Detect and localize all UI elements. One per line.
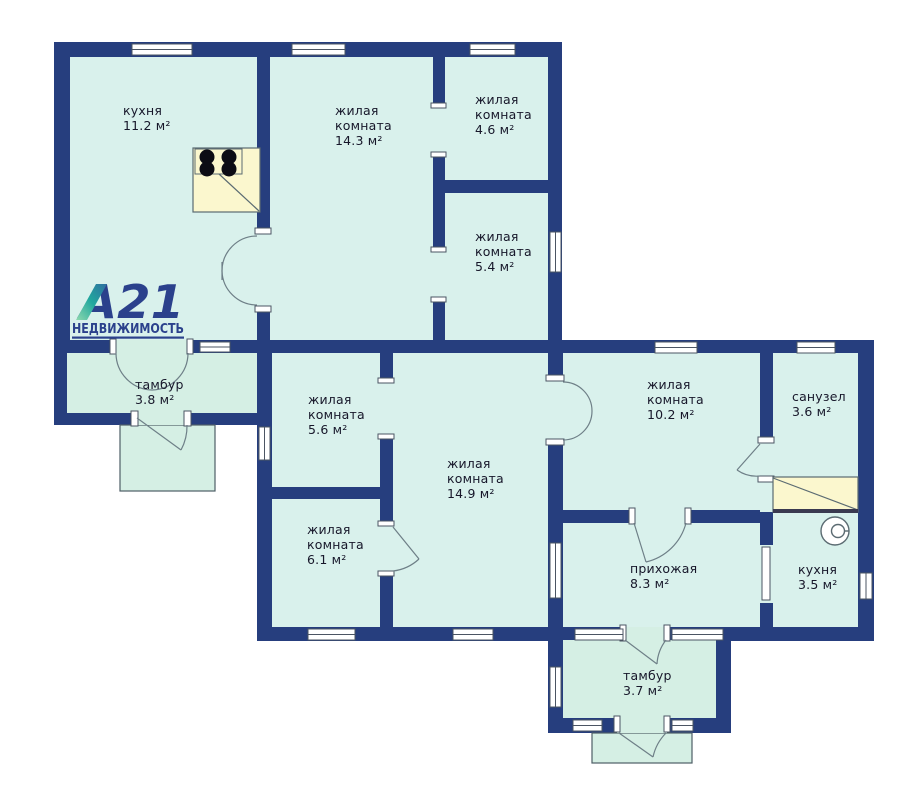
room-label-living-6-1: жилая комната 6.1 м² — [307, 522, 364, 567]
sink-icon — [821, 517, 849, 545]
room-label-kitchen-main: кухня 11.2 м² — [123, 103, 171, 133]
stove-icon — [193, 148, 260, 212]
room-label-bathroom-3-6: санузел 3.6 м² — [792, 389, 846, 419]
room-label-living-5-6: жилая комната 5.6 м² — [308, 392, 365, 437]
logo-underline — [72, 337, 184, 339]
room-interiors — [67, 57, 858, 718]
room-label-living-14-9: жилая комната 14.9 м² — [447, 456, 504, 501]
room-label-hallway-8-3: прихожая 8.3 м² — [630, 561, 697, 591]
room-label-kitchen-3-5: кухня 3.5 м² — [798, 562, 838, 592]
logo-subtitle-text: НЕДВИЖИМОСТЬ — [72, 321, 184, 337]
room-label-tambour-3-7: тамбур 3.7 м² — [623, 668, 672, 698]
porch-bottom — [592, 733, 692, 763]
floor-plan-page: А21 НЕДВИЖИМОСТЬ кухня 11.2 м² жилая ком… — [0, 0, 900, 798]
room-label-living-4-6: жилая комната 4.6 м² — [475, 92, 532, 137]
agency-logo: А21 НЕДВИЖИМОСТЬ — [72, 275, 184, 339]
room-label-living-10-2: жилая комната 10.2 м² — [647, 377, 704, 422]
kitchen-counter — [773, 477, 858, 513]
room-label-living-5-4: жилая комната 5.4 м² — [475, 229, 532, 274]
room-label-living-14-3: жилая комната 14.3 м² — [335, 103, 392, 148]
room-label-tambour-3-8: тамбур 3.8 м² — [135, 377, 184, 407]
porch-left — [120, 425, 215, 491]
door-slab — [762, 547, 770, 600]
